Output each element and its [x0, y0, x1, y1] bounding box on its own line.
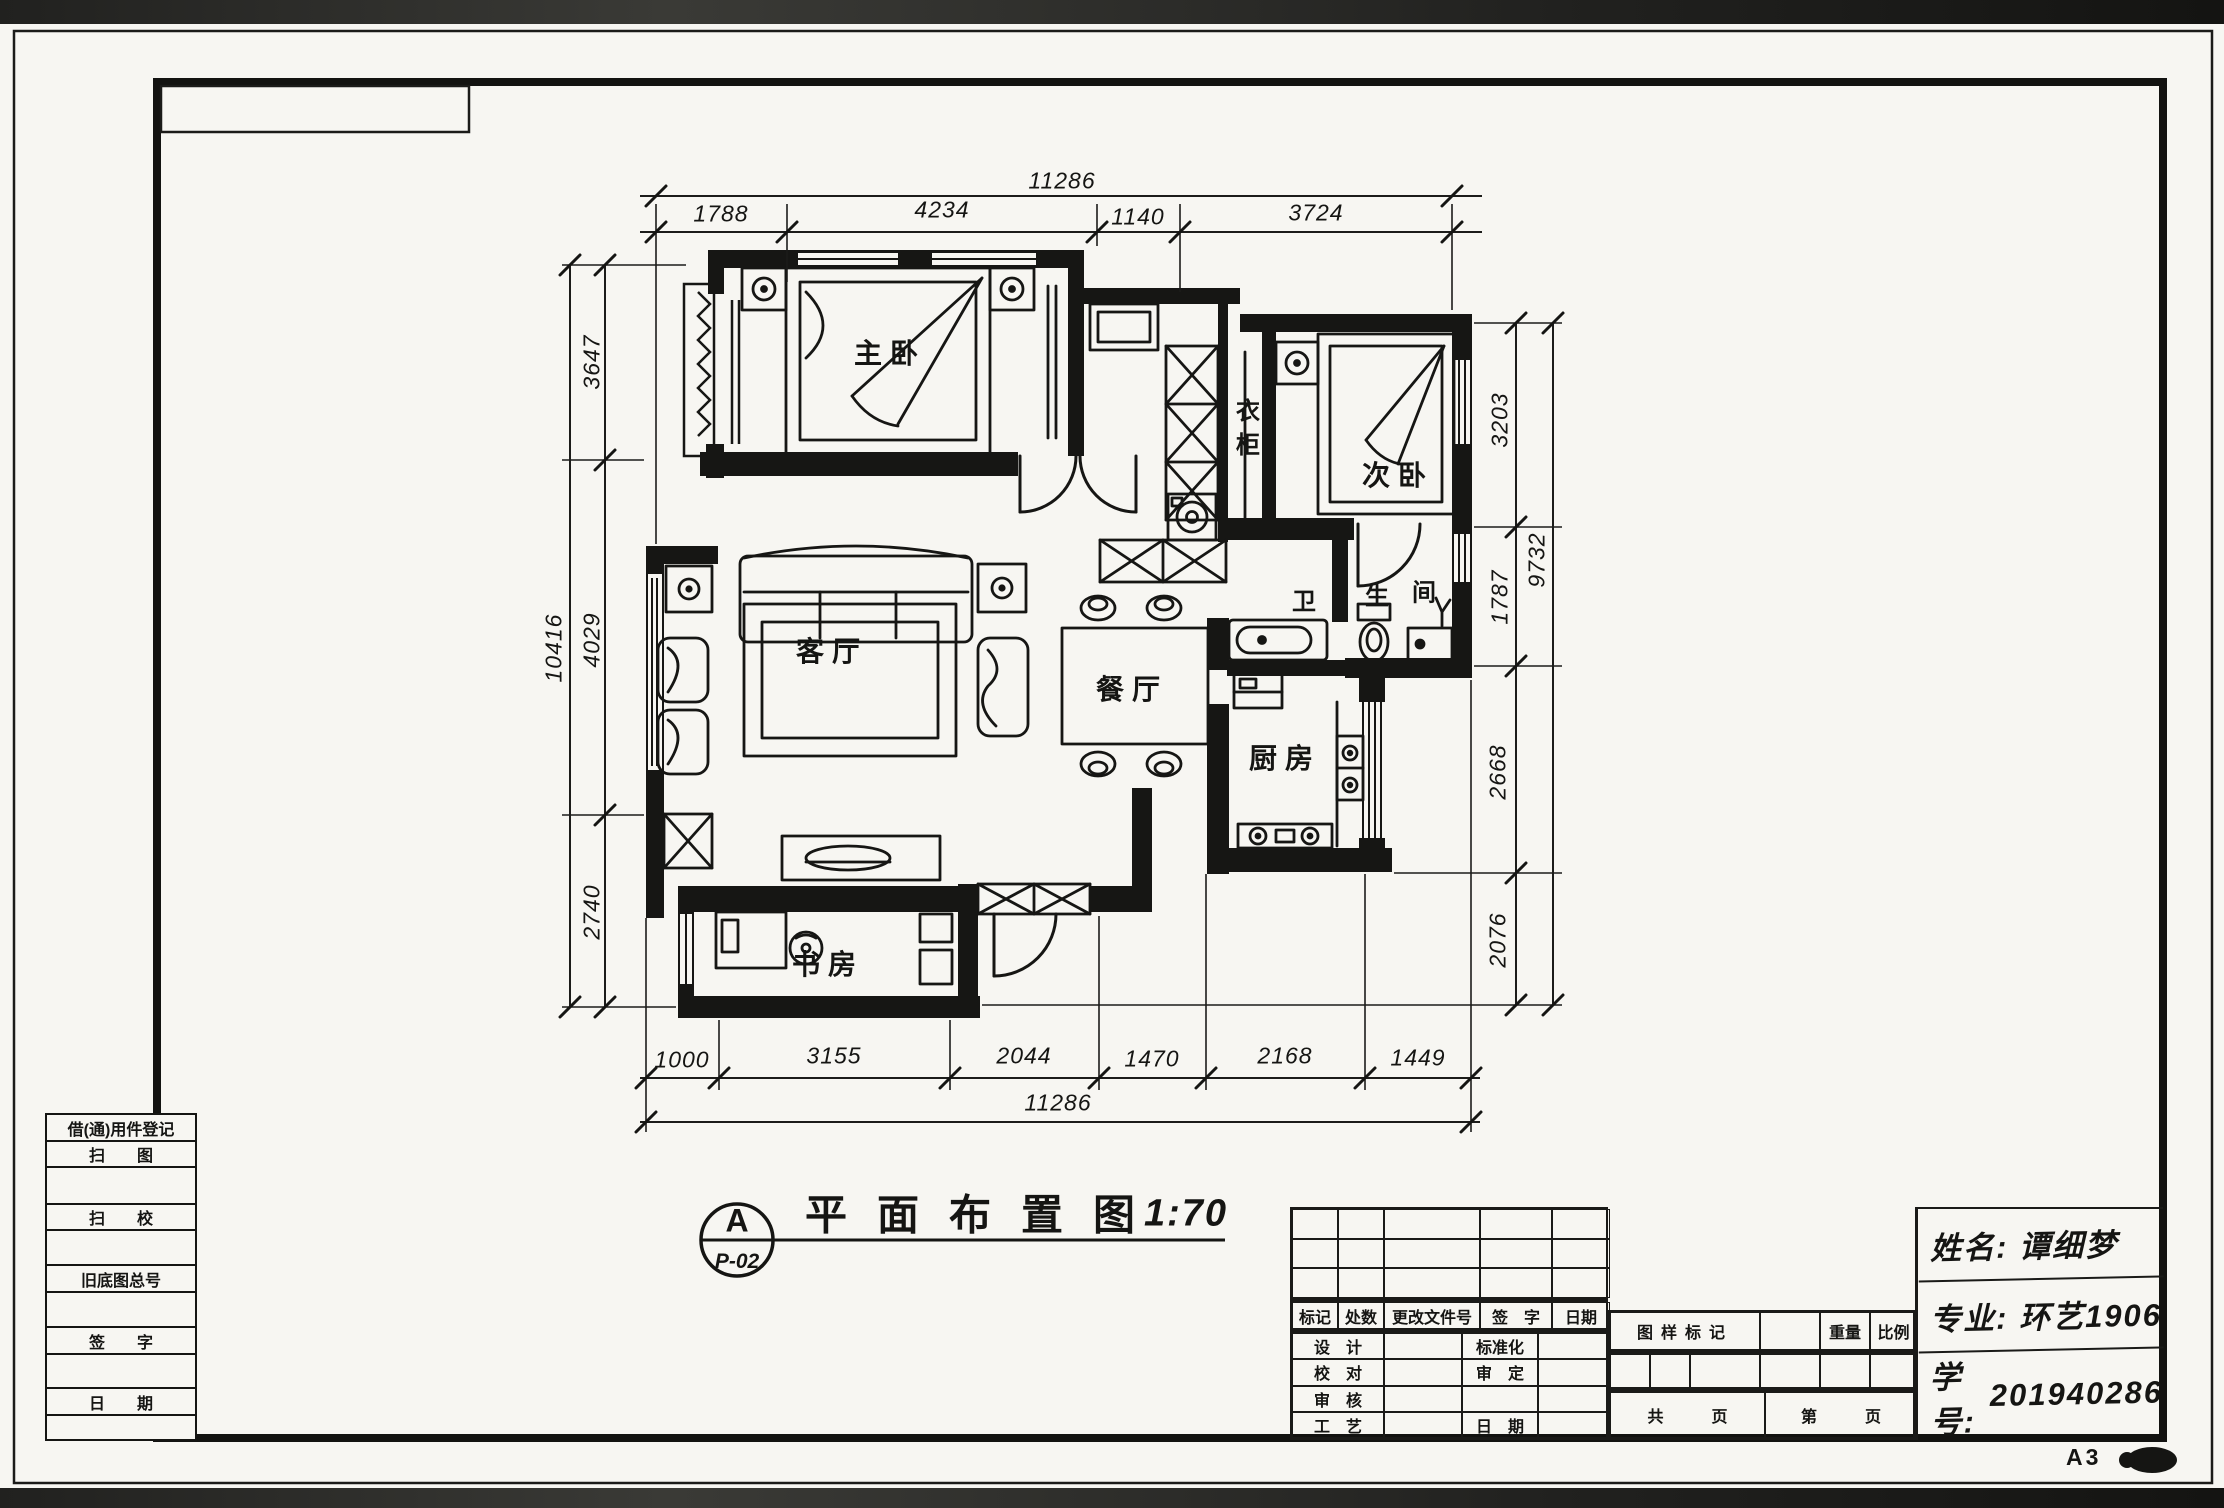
title-block: 标记 处数 更改文件号 签 字 日期 设 计 标准化 校 对 审 定 审 核 工…: [1290, 1207, 1915, 1440]
entry-threshold: [978, 884, 1090, 914]
sheet-size-label: A3: [2066, 1444, 2101, 1471]
dim-bottom-4: 1470: [1124, 1046, 1179, 1073]
student-id-value: 201940286: [1989, 1374, 2163, 1414]
room-label-master: 主卧: [854, 332, 926, 372]
room-label-wardrobe: 衣柜: [1228, 398, 1263, 466]
empty-cell: [1820, 1354, 1870, 1388]
empty-cell: [1552, 1239, 1610, 1269]
empty-cell: [1650, 1354, 1690, 1388]
dim-right-3: 2668: [1485, 744, 1512, 799]
empty-cell: [1384, 1412, 1462, 1438]
student-major-row: 专业: 环艺1906: [1917, 1277, 2163, 1353]
stamp-ratio-label: 比例: [1870, 1312, 1917, 1350]
empty-cell: [1384, 1359, 1462, 1385]
empty-cell: [1690, 1354, 1760, 1388]
signer-label: 日 期: [1462, 1412, 1538, 1438]
dim-left-3: 2740: [579, 884, 606, 939]
washing-machine: [1168, 494, 1216, 540]
registry-row-blank: [47, 1293, 195, 1328]
callout-letter: A: [725, 1203, 748, 1240]
empty-cell: [1292, 1239, 1338, 1269]
stamp-header-row: 图样标记 重量 比例: [1608, 1310, 1915, 1352]
registry-row-label: 扫 校: [47, 1205, 195, 1231]
student-id-row: 学号: 201940286: [1917, 1347, 2164, 1442]
registry-row-blank: [47, 1355, 195, 1389]
student-info-block: 姓名: 谭细梦 专业: 环艺1906 学号: 201940286: [1915, 1207, 2163, 1440]
registry-row-label: 日 期: [47, 1389, 195, 1416]
dim-right-4: 2076: [1485, 912, 1512, 967]
empty-cell: [1538, 1359, 1610, 1385]
student-major-value: 环艺1906: [2018, 1289, 2162, 1337]
walls: [646, 250, 1472, 1018]
empty-cell: [1292, 1209, 1338, 1239]
revision-header-row: 标记 处数 更改文件号 签 字 日期: [1290, 1300, 1608, 1331]
student-name-row: 姓名: 谭细梦: [1917, 1206, 2163, 1282]
dim-right-2: 1787: [1487, 569, 1514, 624]
dim-bottom-5: 2168: [1257, 1043, 1312, 1070]
empty-cell: [1338, 1239, 1384, 1269]
registry-row-blank: [47, 1416, 195, 1439]
empty-cell: [1480, 1209, 1552, 1239]
empty-cell: [1870, 1354, 1917, 1388]
dim-left-total: 10416: [541, 614, 568, 683]
empty-cell: [1338, 1268, 1384, 1298]
toilet: [1358, 604, 1390, 661]
signer-label: 标准化: [1462, 1333, 1538, 1359]
dim-top-total: 11286: [1028, 168, 1095, 195]
dim-bottom-total: 11286: [1024, 1090, 1091, 1117]
room-label-living: 客厅: [796, 630, 868, 670]
shoe-cabinet: [1100, 540, 1226, 582]
signer-label: 设 计: [1292, 1333, 1384, 1359]
student-name-label: 姓名:: [1930, 1221, 2009, 1268]
dim-top-1: 1788: [693, 201, 748, 228]
revision-header-cell: 更改文件号: [1384, 1302, 1480, 1329]
page-number-label: 第 页: [1765, 1392, 1917, 1438]
room-label-study: 书房: [792, 943, 864, 983]
plan-title-text: 平面布置图: [805, 1182, 1165, 1243]
empty-cell: [1538, 1386, 1610, 1412]
registry-row-label: 旧底图总号: [47, 1266, 195, 1293]
empty-cell: [1338, 1209, 1384, 1239]
signer-label: [1462, 1386, 1538, 1412]
dim-top-2: 4234: [914, 197, 969, 224]
stamp-pages-row: 共 页 第 页: [1608, 1390, 1915, 1440]
empty-cell: [1480, 1239, 1552, 1269]
dim-bottom-6: 1449: [1390, 1045, 1445, 1072]
empty-cell: [1384, 1386, 1462, 1412]
empty-cell: [1384, 1209, 1480, 1239]
revision-empty-grid: [1290, 1207, 1608, 1300]
empty-cell: [1384, 1239, 1480, 1269]
tv-console: [664, 814, 940, 880]
bay-window: [684, 284, 739, 456]
empty-cell: [1384, 1333, 1462, 1359]
dim-right-1: 3203: [1487, 392, 1514, 447]
empty-cell: [1760, 1354, 1820, 1388]
signer-label: 审 核: [1292, 1386, 1384, 1412]
revision-header-cell: 处数: [1338, 1302, 1384, 1329]
stamp-small-cells: [1608, 1352, 1915, 1390]
living-rug: [744, 604, 956, 756]
revision-header-cell: 标记: [1292, 1302, 1338, 1329]
room-label-kitchen: 厨房: [1249, 737, 1321, 777]
corner-stamp: [2119, 1447, 2177, 1473]
room-label-bath-1: 卫: [1292, 582, 1316, 617]
left-registry-strip: 借(通)用件登记 扫 图 扫 校 旧底图总号 签 字 日 期: [45, 1113, 197, 1441]
dim-bottom-2: 3155: [806, 1043, 861, 1070]
empty-cell: [1538, 1412, 1610, 1438]
signer-label: 工 艺: [1292, 1412, 1384, 1438]
signer-label: 审 定: [1462, 1359, 1538, 1385]
registry-row-label: 扫 图: [47, 1142, 195, 1168]
revision-header-cell: 签 字: [1480, 1302, 1552, 1329]
registry-row-blank: [47, 1168, 195, 1205]
room-label-bath-3: 间: [1412, 573, 1436, 608]
callout-ref: P-02: [715, 1250, 759, 1274]
signer-grid: 设 计 标准化 校 对 审 定 审 核 工 艺 日 期: [1290, 1331, 1608, 1440]
student-major-label: 专业:: [1930, 1292, 2009, 1339]
empty-cell: [1384, 1268, 1480, 1298]
dim-left-1: 3647: [579, 334, 606, 389]
student-name-value: 谭细梦: [2018, 1219, 2118, 1266]
dim-left-2: 4029: [579, 612, 606, 667]
bathtub: [1229, 620, 1327, 660]
dim-top-4: 3724: [1288, 200, 1343, 227]
room-label-bath-2: 生: [1365, 577, 1389, 612]
empty-cell: [1610, 1354, 1650, 1388]
hall-cabinets: [1090, 304, 1218, 520]
empty-cell: [1480, 1268, 1552, 1298]
empty-cell: [1552, 1209, 1610, 1239]
dim-bottom-1: 1000: [654, 1047, 709, 1074]
signer-label: 校 对: [1292, 1359, 1384, 1385]
empty-cell: [1760, 1312, 1820, 1350]
registry-row-label: 借(通)用件登记: [47, 1115, 195, 1142]
stamp-weight-label: 重量: [1820, 1312, 1870, 1350]
room-label-second: 次卧: [1362, 454, 1434, 494]
empty-cell: [1538, 1333, 1610, 1359]
stamp-mark-label: 图样标记: [1610, 1312, 1760, 1350]
room-label-dining: 餐厅: [1096, 668, 1168, 708]
empty-cell: [1292, 1268, 1338, 1298]
empty-cell: [1552, 1268, 1610, 1298]
registry-row-blank: [47, 1231, 195, 1266]
dim-top-3: 1140: [1111, 204, 1164, 231]
revision-header-cell: 日期: [1552, 1302, 1610, 1329]
dim-bottom-3: 2044: [996, 1043, 1051, 1070]
plan-title-scale: 1:70: [1144, 1193, 1228, 1236]
student-id-label: 学号:: [1929, 1351, 1980, 1442]
total-pages-label: 共 页: [1610, 1392, 1765, 1438]
dim-right-total: 9732: [1524, 532, 1551, 587]
registry-row-label: 签 字: [47, 1328, 195, 1355]
drawing-sheet: 11286 1788 4234 1140 3724 1000 3155 2044…: [0, 0, 2224, 1508]
